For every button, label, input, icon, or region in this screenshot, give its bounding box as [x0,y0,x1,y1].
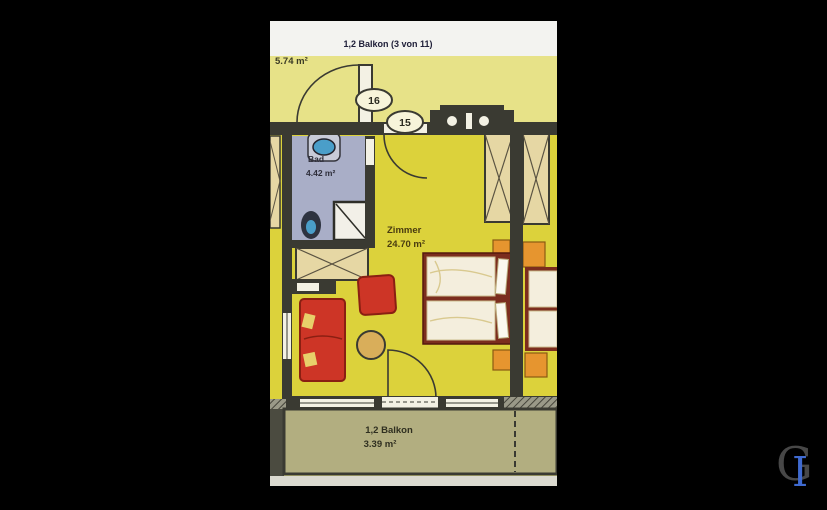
watermark-logo: G I [776,441,826,507]
balcony-floor [284,409,557,474]
neighbour-bed-mattress-1 [529,271,557,307]
marker-15-label: 15 [399,117,411,129]
round-table [357,331,385,359]
floorplan-drawing: 16 15 1,2 Balkon 3.39 m² 5.74 m² Bad 4.4… [270,21,557,486]
bathroom-door-opening [366,139,374,165]
neighbour-nightstand-bottom [525,353,547,377]
fixture-outlet-icon-2 [479,116,489,126]
wall-fixture [430,105,514,132]
photo-bottom-strip [270,476,557,486]
wardrobe-top-right-1 [485,134,513,222]
balcony-left-edge [270,409,284,479]
balcony-name-label: 1,2 Balkon [365,425,413,436]
door-marker-15: 15 [387,111,423,133]
watermark-letter-i: I [792,452,808,493]
bathroom-name-label: Bad [308,154,324,164]
neighbour-bed-mattress-2 [529,311,557,347]
fixture-switch-icon [466,113,472,129]
double-bed [423,253,511,344]
bathroom-area-label: 4.42 m² [306,168,335,178]
sofa-body [300,299,345,381]
wall-right [510,122,523,396]
sink-basin-icon [313,139,335,155]
photo-title: 1,2 Balkon (3 von 11) [343,39,432,49]
wall-bathroom-bottom [292,240,375,248]
toilet-bowl-icon [306,220,316,234]
hall-area-label: 5.74 m² [275,56,308,67]
bathroom [292,133,368,244]
armchair [358,275,397,315]
neighbour-nightstand-top [523,242,545,267]
room-name-label: Zimmer [387,225,422,236]
balcony: 1,2 Balkon 3.39 m² [284,409,557,474]
fixture-outlet-icon [447,116,457,126]
door-marker-16: 16 [356,89,392,111]
wall-stub-opening [297,283,319,291]
nightstand-top [493,240,510,254]
viewer-background: 16 15 1,2 Balkon 3.39 m² 5.74 m² Bad 4.4… [0,0,827,510]
floorplan-photo: 16 15 1,2 Balkon 3.39 m² 5.74 m² Bad 4.4… [270,21,557,486]
marker-16-label: 16 [368,95,380,107]
wardrobe-top-right-2 [523,134,549,224]
wardrobe-below-bathroom [296,248,368,280]
wall-hatch-right [504,397,557,409]
room-area-label: 24.70 m² [387,239,425,250]
balcony-area-label: 3.39 m² [364,439,397,450]
sofa [300,299,345,381]
